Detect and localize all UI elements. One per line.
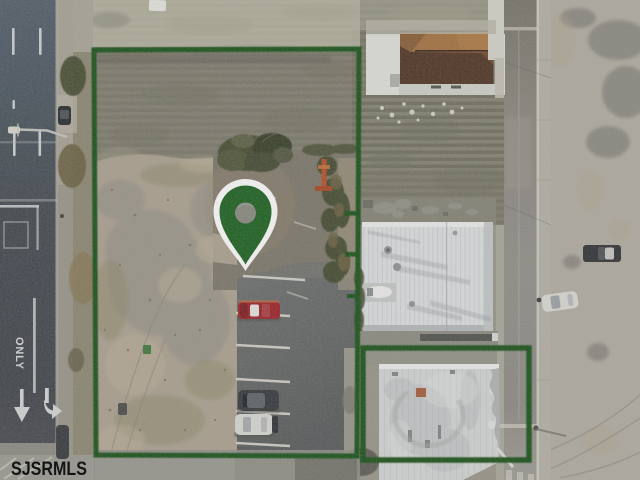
svg-text:SJSRMLS: SJSRMLS	[11, 459, 87, 480]
